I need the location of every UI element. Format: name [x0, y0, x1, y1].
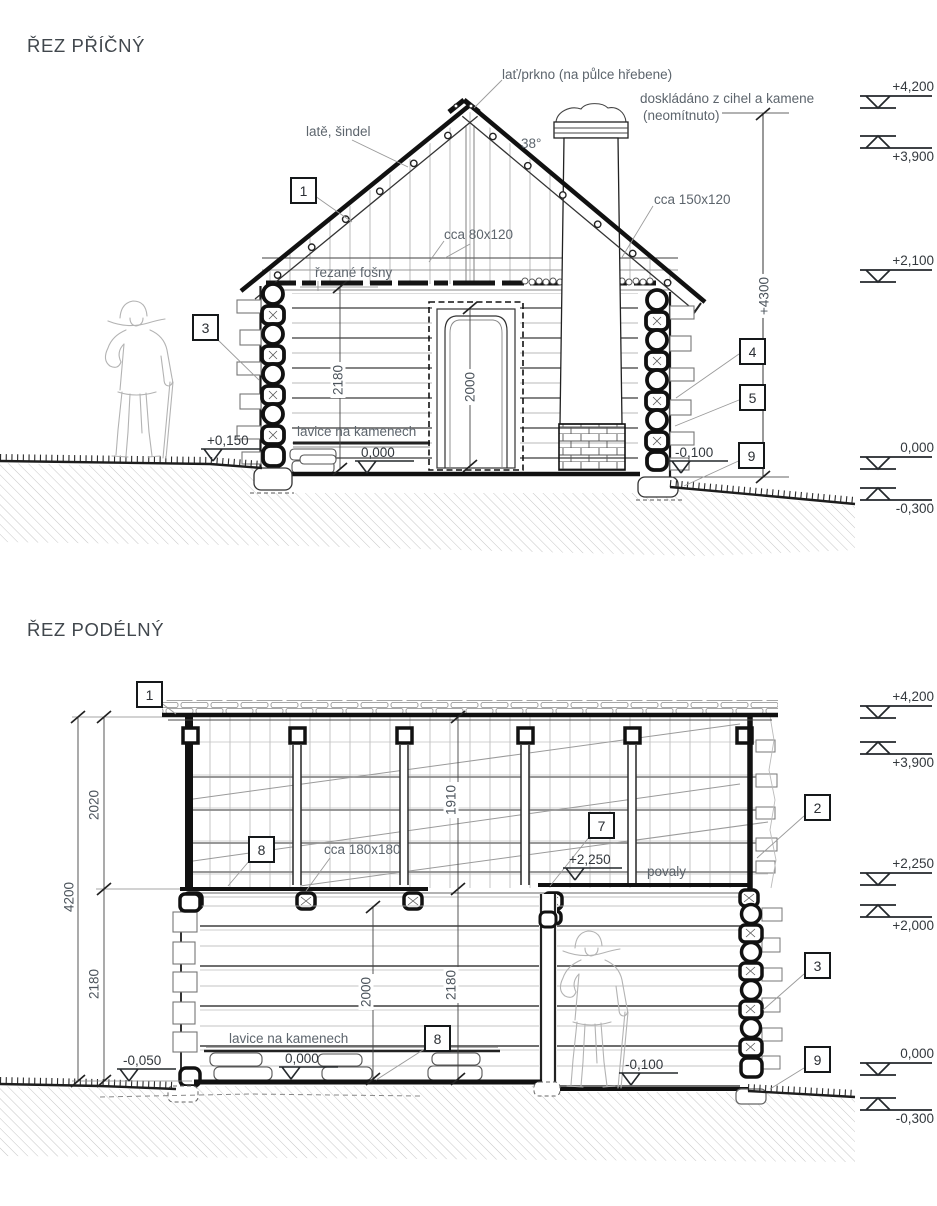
drawing-canvas: ŘEZ PŘÍČNÝ ŘEZ PODÉLNÝ lať/prkno (na půl… — [0, 0, 937, 1206]
callout2-2: 2 — [804, 794, 831, 821]
dim-door-height: 2000 — [463, 369, 478, 405]
label-ridge-board: lať/prkno (na půlce hřebene) — [502, 67, 672, 83]
level-arrow-up-icon — [858, 1096, 936, 1112]
level-arrow-down-icon — [200, 448, 262, 462]
dim-total-height2: 4200 — [62, 879, 77, 915]
level-arrow-up-icon — [858, 903, 936, 919]
level-value: -0,100 — [618, 1058, 680, 1072]
level-mark-3900: +3,900 — [858, 134, 936, 164]
level-value: +2,250 — [858, 857, 936, 871]
section-linework — [0, 0, 937, 1206]
dim-room-height2: 2180 — [87, 966, 102, 1002]
section1-title: ŘEZ PŘÍČNÝ — [27, 35, 145, 57]
log-ends-right2 — [740, 905, 762, 1078]
level-value: +2,000 — [858, 919, 936, 933]
level-mark-4200: +4,200 — [858, 80, 936, 110]
level-value: +3,900 — [858, 756, 936, 770]
dim-total-height: +4300 — [757, 274, 772, 318]
callout-9: 9 — [738, 442, 765, 469]
dim-attic-clear: 1910 — [444, 782, 459, 818]
callout-4: 4 — [739, 338, 766, 365]
label-rafter-size: cca 150x120 — [654, 192, 731, 208]
level-arrow-down-icon — [116, 1068, 178, 1082]
level-value: -0,300 — [858, 1112, 936, 1126]
level-value: 0,000 — [278, 1052, 340, 1066]
level-value: -0,050 — [116, 1054, 178, 1068]
log-ends-left — [262, 284, 284, 466]
level-arrow-down-icon — [278, 1066, 340, 1080]
dim-door-height2: 2000 — [359, 974, 374, 1010]
spot-level-terrain-left2: -0,050 — [116, 1054, 178, 1082]
spot-level-floor-right: -0,100 — [618, 1058, 680, 1086]
level-arrow-down-icon — [668, 460, 730, 474]
level-mark-0000: 0,000 — [858, 441, 936, 471]
level-value: -0,300 — [858, 502, 936, 516]
level-value: +4,200 — [858, 80, 936, 94]
level-arrow-down-icon — [562, 867, 624, 881]
level-arrow-up-icon — [858, 740, 936, 756]
level2-mark-2250: +2,250 — [858, 857, 936, 887]
label-bench2: lavice na kamenech — [229, 1031, 348, 1047]
spot-level-floor2: 0,000 — [278, 1052, 340, 1080]
label-battens-shingle: latě, šindel — [306, 124, 371, 140]
level-value: +0,150 — [200, 434, 262, 448]
person-figure — [105, 301, 173, 458]
label-tie-beam-size: cca 80x120 — [444, 227, 513, 243]
level-value: +2,250 — [562, 853, 624, 867]
callout2-7: 7 — [588, 812, 615, 839]
label-beam-size: cca 180x180 — [324, 842, 401, 858]
level-arrow-down-icon — [858, 1061, 936, 1077]
level-arrow-down-icon — [858, 704, 936, 720]
label-sawn-planks: řezané fošny — [315, 265, 392, 281]
level-arrow-down-icon — [858, 94, 936, 110]
level-value: +3,900 — [858, 150, 936, 164]
callout2-8a: 8 — [248, 836, 275, 863]
label-roof-angle: 38° — [521, 136, 541, 152]
bench-stones — [290, 449, 336, 473]
spot-level-floor: 0,000 — [354, 446, 416, 474]
level-mark-2100: +2,100 — [858, 254, 936, 284]
level2-mark-minus300: -0,300 — [858, 1096, 936, 1126]
label-bench: lavice na kamenech — [297, 424, 416, 440]
callout-3: 3 — [192, 314, 219, 341]
wall-tabs-left — [173, 912, 197, 1052]
level-arrow-down-icon — [858, 455, 936, 471]
callout2-3: 3 — [804, 952, 831, 979]
level-mark-minus300: -0,300 — [858, 486, 936, 516]
callout-5: 5 — [739, 384, 766, 411]
level-arrow-down-icon — [354, 460, 416, 474]
level-value: 0,000 — [858, 1047, 936, 1061]
callout2-9: 9 — [804, 1046, 831, 1073]
label-chimney-note-2: (neomítnuto) — [643, 108, 720, 124]
callout2-8b: 8 — [424, 1025, 451, 1052]
dim-room-clear: 2180 — [444, 967, 459, 1003]
label-chimney-note-1: doskládáno z cihel a kamene — [640, 91, 814, 107]
level-arrow-down-icon — [618, 1072, 680, 1086]
spot-level-terrain-right: -0,100 — [668, 446, 730, 474]
level-arrow-down-icon — [858, 871, 936, 887]
section2-title: ŘEZ PODÉLNÝ — [27, 619, 164, 641]
level-arrow-down-icon — [858, 268, 936, 284]
level-value: 0,000 — [354, 446, 416, 460]
level-arrow-up-icon — [858, 134, 936, 150]
level2-mark-0000: 0,000 — [858, 1047, 936, 1077]
level2-mark-3900: +3,900 — [858, 740, 936, 770]
dim-room-height: 2180 — [331, 362, 346, 398]
log-ends-right — [646, 290, 668, 470]
level2-mark-2000: +2,000 — [858, 903, 936, 933]
spot-level-ceiling-right: +2,250 — [562, 853, 624, 881]
level-arrow-up-icon — [858, 486, 936, 502]
level-value: -0,100 — [668, 446, 730, 460]
level2-mark-4200: +4,200 — [858, 690, 936, 720]
section2-drawing — [0, 700, 855, 1162]
wall-tabs-right — [762, 908, 782, 1069]
section1-drawing — [0, 80, 855, 556]
bench-stones2 — [210, 1053, 482, 1080]
level-value: 0,000 — [858, 441, 936, 455]
level-value: +2,100 — [858, 254, 936, 268]
level-value: +4,200 — [858, 690, 936, 704]
label-povaly: povaly — [647, 864, 686, 880]
spot-level-terrain-left: +0,150 — [200, 434, 262, 462]
callout-1: 1 — [290, 177, 317, 204]
callout2-1: 1 — [136, 681, 163, 708]
dim-attic-height: 2020 — [87, 787, 102, 823]
